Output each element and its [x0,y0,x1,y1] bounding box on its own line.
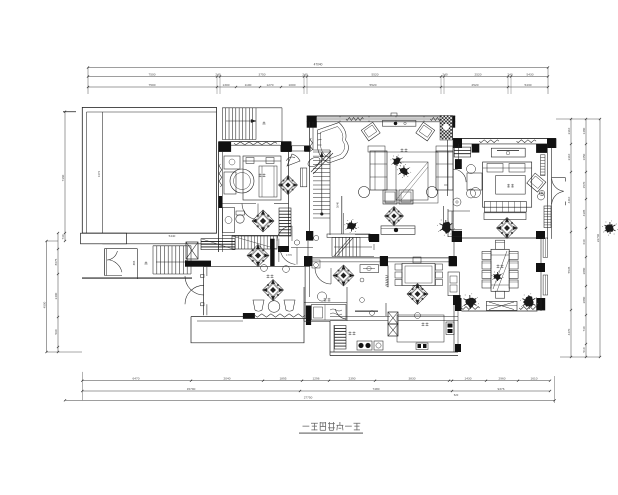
svg-text:3750: 3750 [259,72,266,76]
svg-text:8675: 8675 [54,258,58,265]
svg-text:4410: 4410 [567,196,571,203]
svg-text:1000: 1000 [289,83,296,87]
svg-text:4500: 4500 [42,301,46,308]
svg-text:4305: 4305 [582,209,586,216]
svg-text:47040: 47040 [314,63,323,67]
svg-text:2520: 2520 [472,83,479,87]
svg-text:3830: 3830 [409,377,416,381]
svg-text:1650: 1650 [582,153,586,160]
svg-text:520: 520 [454,393,459,397]
svg-text:1300: 1300 [223,83,230,87]
svg-text:865: 865 [132,260,136,265]
svg-text:7500: 7500 [149,72,156,76]
svg-text:240: 240 [302,72,307,76]
svg-text:640: 640 [582,239,586,244]
svg-text:240: 240 [507,72,512,76]
svg-text:1770: 1770 [286,253,292,257]
svg-text:1270: 1270 [267,83,274,87]
svg-text:3640: 3640 [336,201,340,208]
svg-text:240: 240 [215,72,220,76]
svg-text:1100: 1100 [245,83,252,87]
svg-text:2880: 2880 [582,296,586,303]
svg-text:7360: 7360 [61,174,65,181]
svg-text:5535: 5535 [567,266,571,273]
svg-text:5430: 5430 [525,83,532,87]
svg-text:4470: 4470 [567,328,571,335]
svg-text:2310: 2310 [567,153,571,160]
svg-text:22740: 22740 [596,233,600,242]
svg-text:1430: 1430 [465,377,472,381]
svg-text:7500: 7500 [149,83,156,87]
svg-text:240: 240 [442,72,447,76]
svg-text:2040: 2040 [224,377,231,381]
svg-text:6470: 6470 [133,377,140,381]
svg-text:5430: 5430 [527,72,534,76]
svg-text:2400: 2400 [54,292,58,299]
svg-text:5440: 5440 [169,234,176,238]
svg-text:2880: 2880 [582,267,586,274]
svg-text:2390: 2390 [349,377,356,381]
svg-text:9376: 9376 [498,387,505,391]
svg-text:1895: 1895 [280,377,287,381]
svg-text:510: 510 [582,347,586,352]
svg-text:2310: 2310 [567,127,571,134]
svg-text:2520: 2520 [475,72,482,76]
svg-text:1296: 1296 [313,377,320,381]
svg-text:2960: 2960 [499,377,506,381]
svg-text:740: 740 [61,234,65,239]
svg-text:5520: 5520 [372,72,379,76]
svg-text:27750: 27750 [304,395,313,399]
svg-text:5520: 5520 [370,83,377,87]
svg-text:740: 740 [582,326,586,331]
svg-text:7480: 7480 [373,387,380,391]
svg-text:1570: 1570 [582,181,586,188]
svg-text:15790: 15790 [187,387,196,391]
svg-text:1480: 1480 [582,127,586,134]
svg-text:590: 590 [54,329,58,334]
svg-text:1610: 1610 [531,377,538,381]
svg-text:1373: 1373 [97,170,101,177]
